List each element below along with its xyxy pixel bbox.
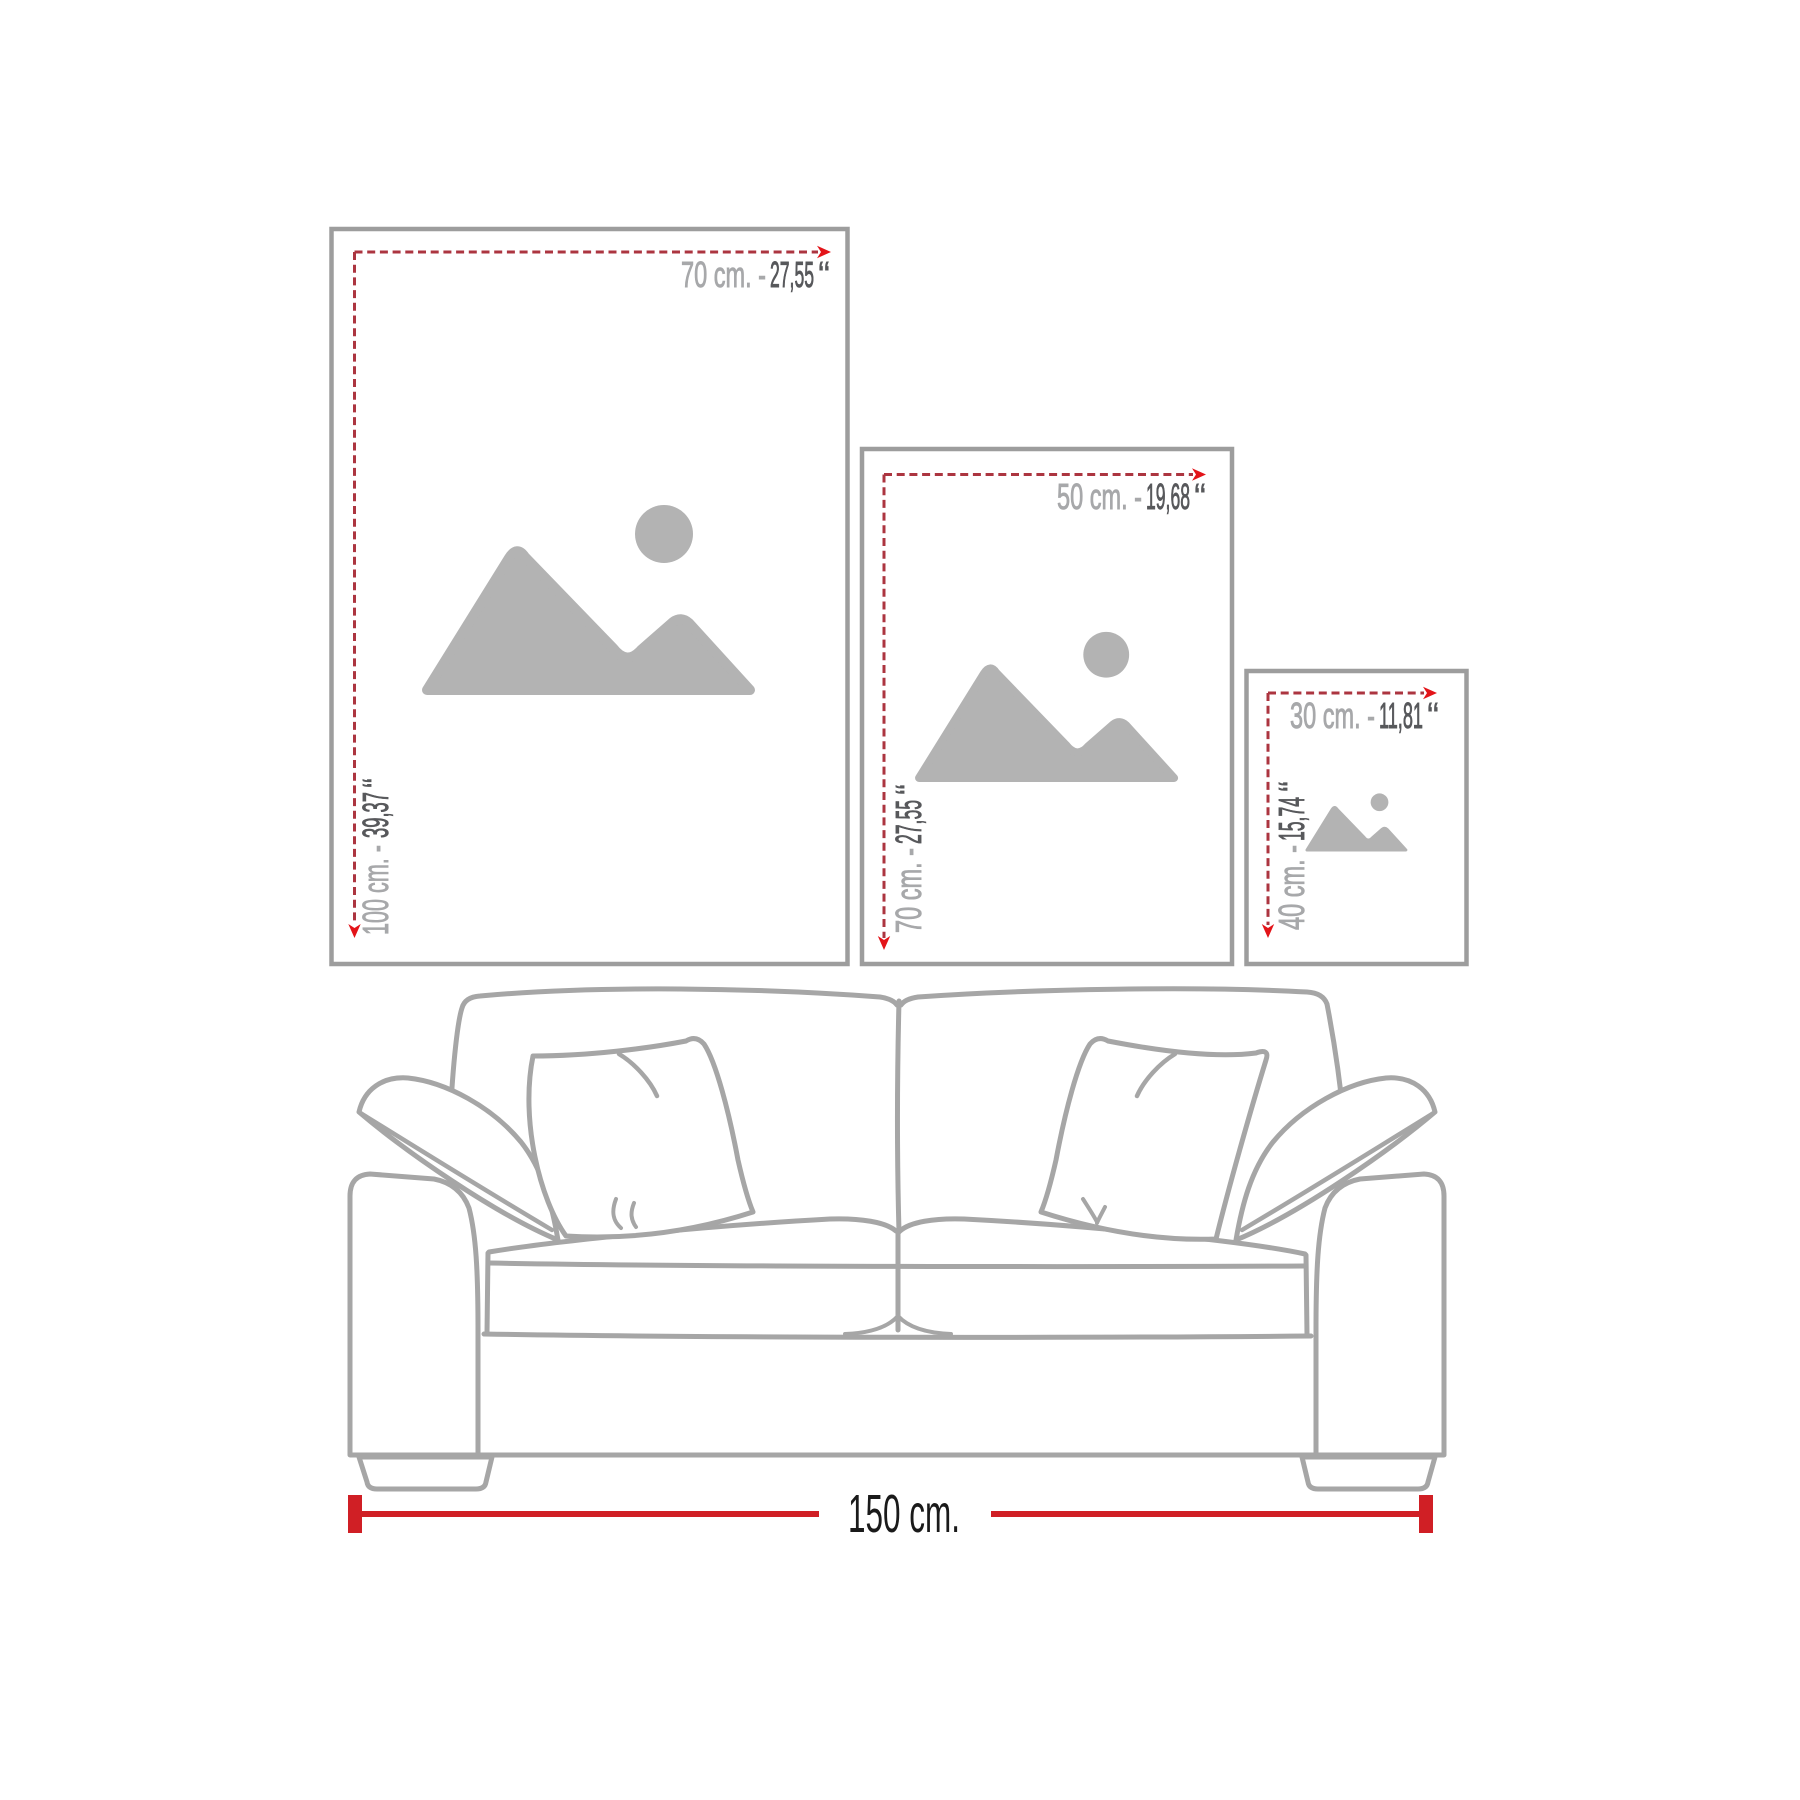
svg-text:‘‘: ‘‘ xyxy=(1194,476,1206,517)
svg-text:19,68: 19,68 xyxy=(1146,476,1190,517)
svg-text:11,81: 11,81 xyxy=(1379,695,1423,736)
svg-text:‘‘: ‘‘ xyxy=(1427,695,1439,736)
svg-text:15,74: 15,74 xyxy=(1271,797,1312,841)
svg-text:70 cm. -: 70 cm. - xyxy=(681,254,766,295)
svg-text:‘‘: ‘‘ xyxy=(888,784,929,795)
svg-text:‘‘: ‘‘ xyxy=(1271,781,1312,792)
svg-text:30 cm. -: 30 cm. - xyxy=(1290,695,1375,736)
svg-text:70 cm. -: 70 cm. - xyxy=(888,848,929,933)
svg-text:39,37: 39,37 xyxy=(355,792,396,838)
svg-text:40 cm. -: 40 cm. - xyxy=(1271,845,1312,930)
svg-text:50 cm. -: 50 cm. - xyxy=(1057,476,1142,517)
svg-text:27,55: 27,55 xyxy=(888,800,929,844)
svg-text:150 cm.: 150 cm. xyxy=(848,1484,960,1544)
svg-text:27,55: 27,55 xyxy=(770,254,814,295)
svg-text:‘‘: ‘‘ xyxy=(818,254,830,295)
svg-text:‘‘: ‘‘ xyxy=(355,778,396,788)
svg-text:100 cm. -: 100 cm. - xyxy=(355,845,396,935)
